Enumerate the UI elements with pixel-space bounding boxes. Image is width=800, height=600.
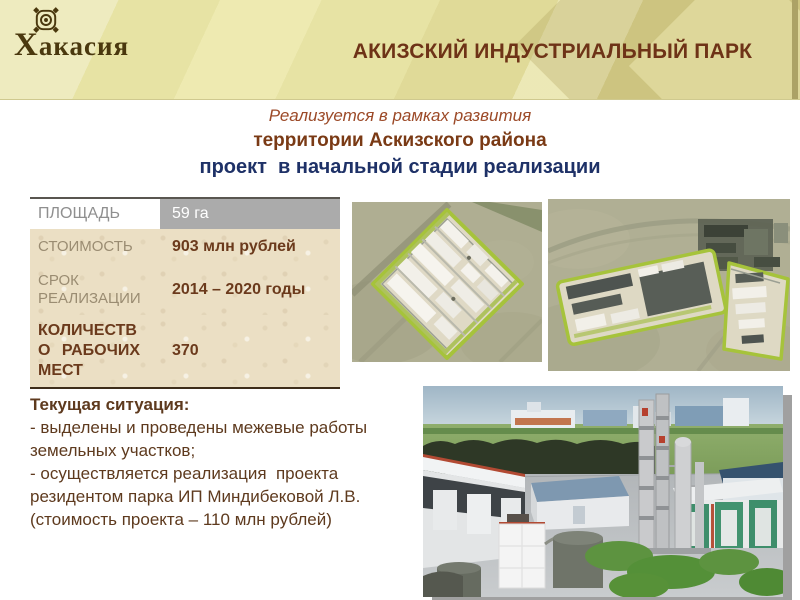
page-title: АКИЗСКИЙ ИНДУСТРИАЛЬНЫЙ ПАРК	[320, 40, 785, 64]
satellite-image-right	[548, 199, 790, 371]
satellite-right-graphic	[548, 199, 790, 371]
situation-item-2: - осуществляется реализация проекта рези…	[30, 462, 392, 531]
row-label-cost: СТОИМОСТЬ	[30, 229, 160, 265]
subtitle-block: Реализуется в рамках развития территории…	[50, 106, 750, 179]
render-graphic	[423, 386, 783, 597]
table-row-jobs: КОЛИЧЕСТВО РАБОЧИХ МЕСТ 370	[30, 315, 340, 387]
row-value-cost: 903 млн рублей	[160, 229, 340, 265]
row-label-jobs: КОЛИЧЕСТВО РАБОЧИХ МЕСТ	[30, 315, 160, 387]
table-row-cost: СТОИМОСТЬ 903 млн рублей	[30, 229, 340, 265]
subtitle-line-2: территории Аскизского района	[50, 130, 750, 152]
current-situation-title: Текущая ситуация:	[30, 393, 392, 416]
current-situation-block: Текущая ситуация: - выделены и проведены…	[30, 393, 392, 531]
table-row-period: СРОК РЕАЛИЗАЦИИ 2014 – 2020 годы	[30, 265, 340, 315]
industrial-park-render-image	[423, 386, 783, 597]
khakassia-logo: Хакасия	[14, 4, 164, 66]
table-row-area: ПЛОЩАДЬ 59 га	[30, 199, 340, 229]
subtitle-line-1: Реализуется в рамках развития	[50, 106, 750, 126]
row-label-period: СРОК РЕАЛИЗАЦИИ	[30, 265, 160, 315]
satellite-image-left	[352, 202, 542, 362]
presentation-slide: Хакасия АКИЗСКИЙ ИНДУСТРИАЛЬНЫЙ ПАРК Реа…	[0, 0, 800, 600]
situation-item-1: - выделены и проведены межевые работы зе…	[30, 416, 392, 462]
row-value-period: 2014 – 2020 годы	[160, 265, 340, 315]
row-label-area: ПЛОЩАДЬ	[30, 199, 160, 229]
subtitle-line-3: проект в начальной стадии реализации	[50, 156, 750, 179]
row-value-area: 59 га	[160, 199, 340, 229]
header-band-edge	[792, 0, 798, 99]
key-metrics-table: ПЛОЩАДЬ 59 га СТОИМОСТЬ 903 млн рублей С…	[30, 197, 340, 389]
logo-region-name: Хакасия	[14, 30, 129, 61]
satellite-left-graphic	[352, 202, 542, 362]
row-value-jobs: 370	[160, 315, 340, 387]
